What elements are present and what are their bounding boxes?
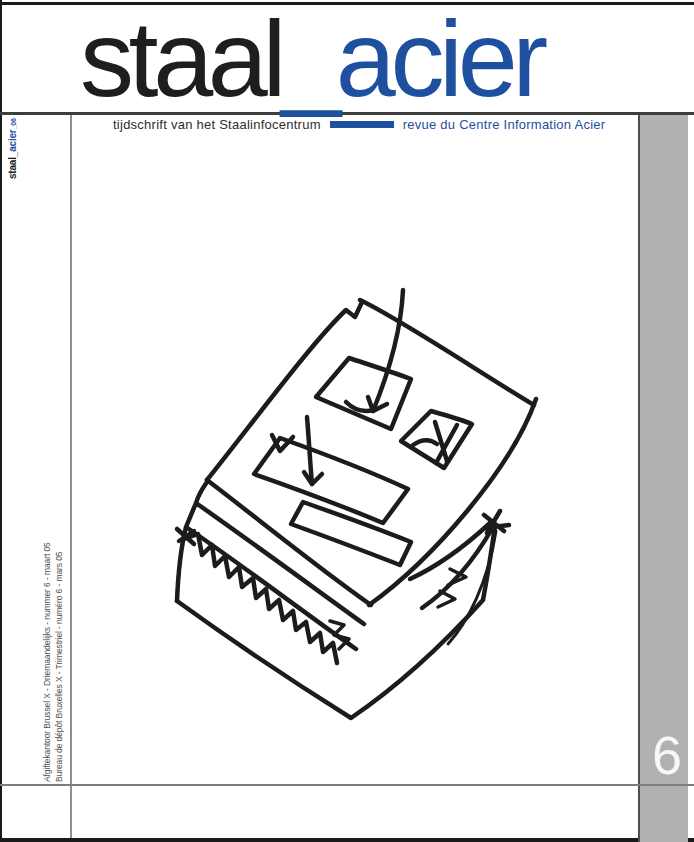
sketch-coil-zigzag: [184, 534, 337, 663]
issue-number: 6: [638, 728, 682, 782]
sketch-top-sheet-top-edge: [360, 300, 534, 405]
masthead-title-black: staal: [80, 0, 281, 119]
subtitle-french: revue du Centre Information Acier: [403, 117, 606, 132]
bottom-rule: [0, 838, 694, 842]
spine-issue-suffix: _06: [10, 118, 17, 129]
masthead-subtitle-row: tijdschrift van het Staalinfocentrum rev…: [113, 117, 605, 132]
spine-label: staal_acier_06: [7, 118, 18, 179]
subtitle-dutch: tijdschrift van het Staalinfocentrum: [113, 117, 321, 132]
footer-rule: [0, 784, 694, 786]
imprint-line-dutch: Afgiftekantoor Brussel X - Driemaandelij…: [42, 542, 54, 782]
sketch-top-sheet-left-edge: [207, 302, 362, 480]
postal-imprint: Afgiftekantoor Brussel X - Driemaandelij…: [42, 542, 65, 782]
magazine-cover: staal_acier tijdschrift van het Staalinf…: [0, 0, 694, 842]
left-rule: [0, 0, 2, 842]
spine-label-blue: _acier: [7, 129, 18, 157]
spine-label-black: staal: [7, 157, 18, 179]
sketch-block-a: [316, 358, 411, 429]
masthead-title-blue: _acier: [281, 0, 543, 119]
content-vertical-rule: [70, 114, 72, 838]
sketch-right-chevrons: [438, 569, 466, 607]
subtitle-divider-bar: [330, 121, 394, 128]
imprint-line-french: Bureau de dépôt Bruxelles X - Trimestrie…: [54, 542, 66, 782]
masthead-title: staal_acier: [80, 5, 543, 113]
cover-sketch: [150, 272, 565, 742]
